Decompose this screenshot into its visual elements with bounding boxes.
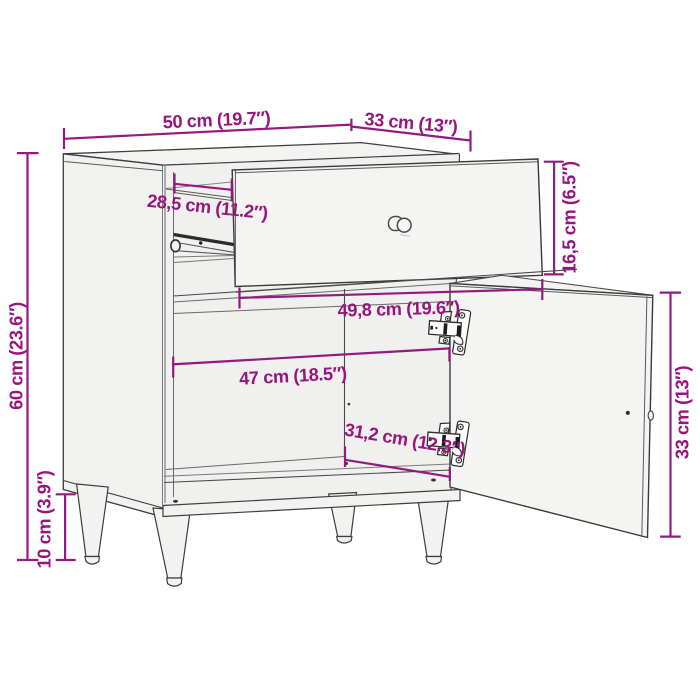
svg-text:49,8 cm (19.6″): 49,8 cm (19.6″) bbox=[337, 297, 460, 320]
svg-text:16,5 cm (6.5″): 16,5 cm (6.5″) bbox=[560, 161, 580, 274]
svg-text:60 cm (23.6″): 60 cm (23.6″) bbox=[7, 302, 27, 410]
svg-text:10 cm (3.9″): 10 cm (3.9″) bbox=[35, 470, 55, 568]
svg-text:33 cm (13″): 33 cm (13″) bbox=[673, 366, 693, 460]
